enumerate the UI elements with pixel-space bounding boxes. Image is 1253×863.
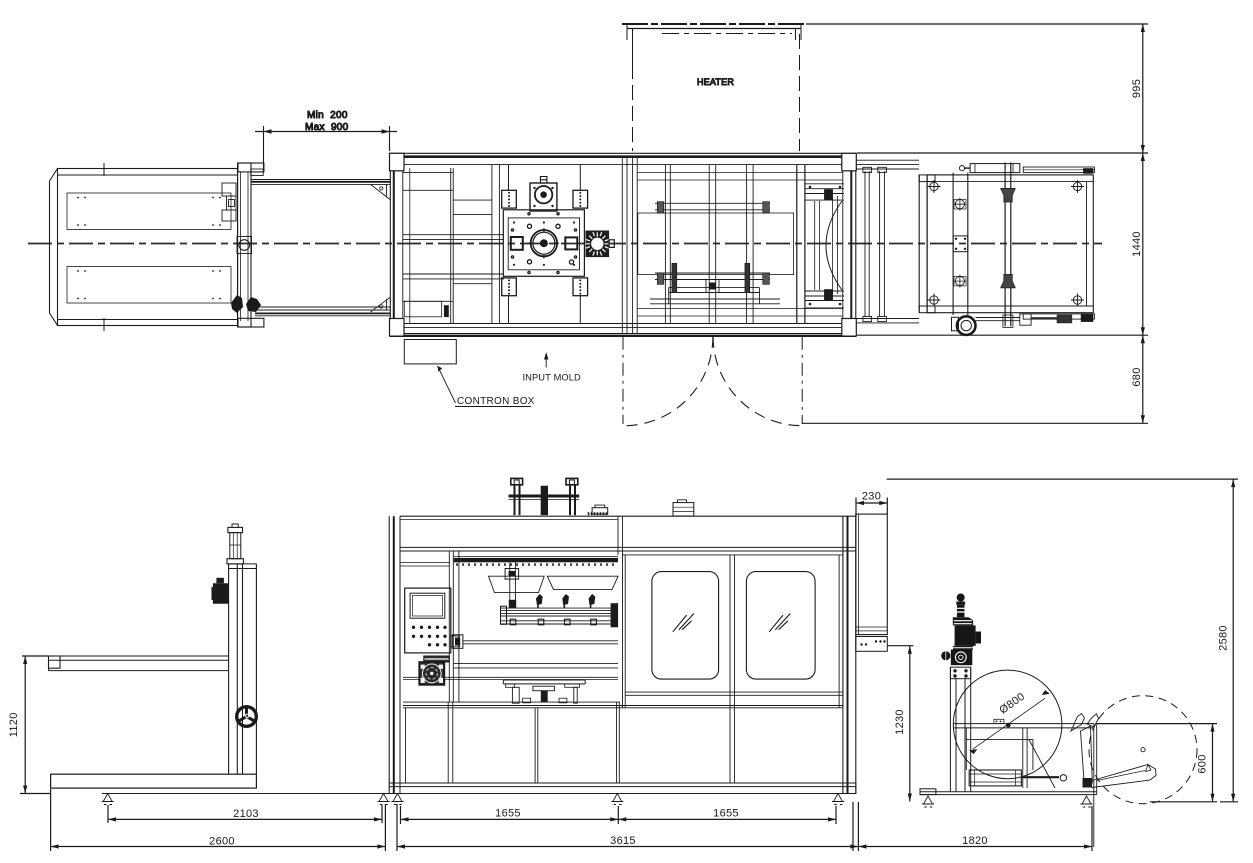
svg-text:CONTRON BOX: CONTRON BOX bbox=[457, 396, 535, 407]
svg-text:INPUT MOLD: INPUT MOLD bbox=[523, 373, 582, 383]
svg-text:3615: 3615 bbox=[610, 835, 636, 847]
svg-text:Min 200: Min 200 bbox=[307, 110, 348, 121]
svg-text:600: 600 bbox=[1197, 754, 1209, 773]
svg-text:230: 230 bbox=[862, 491, 881, 503]
svg-text:1230: 1230 bbox=[894, 709, 906, 735]
svg-text:1655: 1655 bbox=[495, 808, 521, 820]
svg-text:1440: 1440 bbox=[1131, 231, 1143, 257]
svg-text:2580: 2580 bbox=[1218, 625, 1230, 651]
svg-text:2103: 2103 bbox=[233, 808, 259, 820]
svg-text:1820: 1820 bbox=[962, 835, 988, 847]
svg-text:680: 680 bbox=[1131, 367, 1143, 386]
svg-text:1120: 1120 bbox=[8, 712, 20, 737]
svg-text:HEATER: HEATER bbox=[697, 77, 734, 87]
svg-text:1655: 1655 bbox=[713, 808, 739, 820]
svg-text:995: 995 bbox=[1131, 79, 1143, 98]
svg-text:2600: 2600 bbox=[209, 836, 235, 848]
